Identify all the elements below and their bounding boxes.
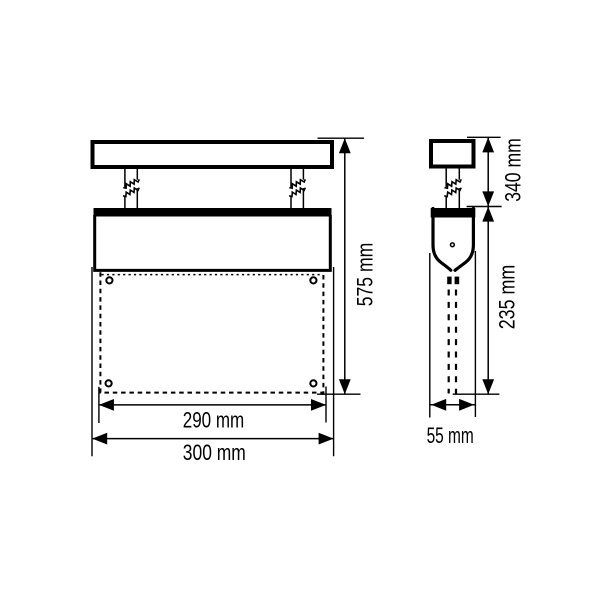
- svg-text:340 mm: 340 mm: [500, 138, 525, 202]
- svg-text:300 mm: 300 mm: [183, 440, 246, 465]
- svg-text:55 mm: 55 mm: [427, 423, 474, 448]
- svg-text:235 mm: 235 mm: [495, 265, 520, 330]
- svg-text:575 mm: 575 mm: [352, 243, 377, 307]
- svg-text:290 mm: 290 mm: [183, 408, 245, 433]
